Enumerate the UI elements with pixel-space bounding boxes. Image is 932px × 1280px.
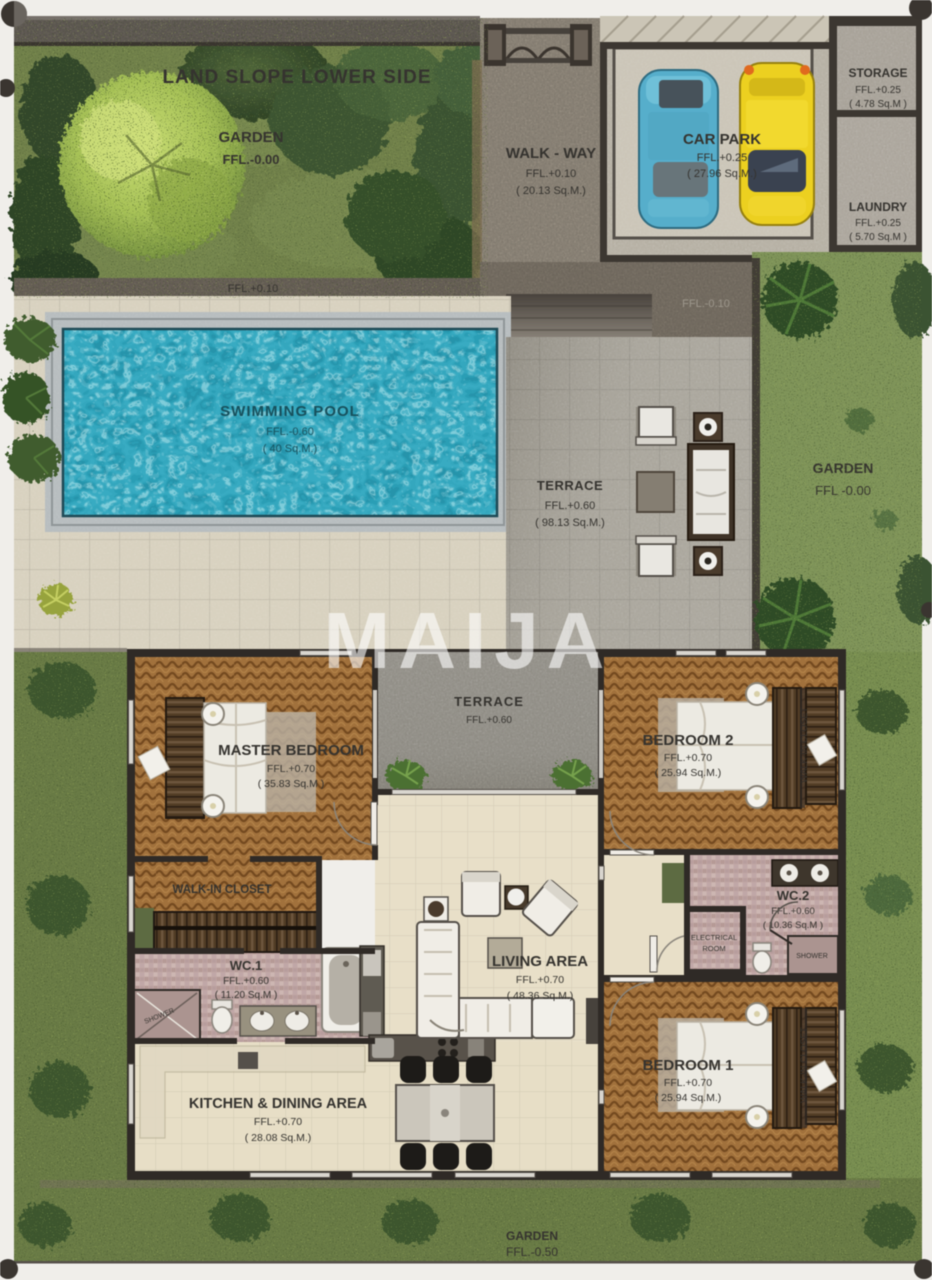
svg-text:FFL.+0.70: FFL.+0.70 [664,1077,712,1089]
svg-text:( 27.96 Sq.M.): ( 27.96 Sq.M.) [687,168,757,180]
svg-text:( 48.36 Sq.M.): ( 48.36 Sq.M.) [507,990,574,1002]
svg-text:CAR PARK: CAR PARK [683,131,761,148]
svg-text:SHOWER: SHOWER [796,953,828,960]
svg-text:( 35.83 Sq.M ): ( 35.83 Sq.M ) [258,778,325,790]
svg-text:GARDEN: GARDEN [218,129,283,146]
svg-text:FFL.+0.25: FFL.+0.25 [855,218,901,229]
svg-text:( 11.20 Sq.M ): ( 11.20 Sq.M ) [215,990,278,1001]
svg-text:FFL.+0.70: FFL.+0.70 [516,974,564,986]
svg-text:( 4.78 Sq.M ): ( 4.78 Sq.M ) [849,99,907,110]
svg-text:TERRACE: TERRACE [537,478,603,493]
svg-text:( 98.13 Sq.M.): ( 98.13 Sq.M.) [535,517,605,529]
svg-text:FFL.-0.60: FFL.-0.60 [266,426,314,438]
svg-text:FFL.+0.25: FFL.+0.25 [855,85,901,96]
svg-text:FFL.-0.00: FFL.-0.00 [222,152,279,167]
svg-text:KITCHEN & DINING AREA: KITCHEN & DINING AREA [189,1096,368,1112]
svg-text:( 40 Sq.M.): ( 40 Sq.M.) [263,443,317,455]
svg-text:FFL.+0.60: FFL.+0.60 [466,715,512,726]
svg-text:FFL.+0.70: FFL.+0.70 [267,763,315,775]
svg-text:BEDROOM 2: BEDROOM 2 [643,732,734,749]
svg-text:WC.1: WC.1 [230,958,263,973]
svg-text:LIVING AREA: LIVING AREA [492,953,588,970]
svg-text:( 20.13 Sq.M.): ( 20.13 Sq.M.) [516,185,586,197]
svg-text:WC.2: WC.2 [777,888,810,903]
svg-text:BEDROOM 1: BEDROOM 1 [643,1057,734,1074]
svg-text:FFL.-0.50: FFL.-0.50 [506,1245,558,1259]
svg-text:FFL.+0.70: FFL.+0.70 [254,1116,302,1128]
svg-text:MAIJA: MAIJA [324,596,613,685]
svg-text:MASTER BEDROOM: MASTER BEDROOM [218,742,364,759]
svg-text:FFL.+0.25: FFL.+0.25 [697,152,747,164]
svg-text:STORAGE: STORAGE [848,66,907,80]
svg-text:( 5.70 Sq.M ): ( 5.70 Sq.M ) [849,232,907,243]
svg-text:ELECTRICAL: ELECTRICAL [691,933,737,942]
svg-text:FFL.+0.70: FFL.+0.70 [664,752,712,764]
svg-text:ROOM: ROOM [702,944,725,953]
svg-text:LAUNDRY: LAUNDRY [849,200,907,214]
svg-text:FFL.-0.10: FFL.-0.10 [682,298,730,310]
svg-text:GARDEN: GARDEN [506,1229,558,1243]
svg-text:( 25.94 Sq.M.): ( 25.94 Sq.M.) [655,1092,722,1104]
svg-text:( 25.94 Sq.M.): ( 25.94 Sq.M.) [655,767,722,779]
svg-text:FFL.+0.10: FFL.+0.10 [526,168,576,180]
svg-text:WALK-IN CLOSET: WALK-IN CLOSET [172,884,271,896]
svg-text:WALK - WAY: WALK - WAY [506,145,596,162]
svg-text:LAND SLOPE LOWER SIDE: LAND SLOPE LOWER SIDE [162,67,431,88]
svg-text:SWIMMING POOL: SWIMMING POOL [220,403,360,420]
svg-text:FFL.+0.60: FFL.+0.60 [223,976,269,987]
svg-text:FFL.+0.60: FFL.+0.60 [545,500,595,512]
svg-text:TERRACE: TERRACE [454,694,524,709]
svg-text:( 28.08 Sq.M.): ( 28.08 Sq.M.) [245,1132,312,1144]
svg-text:FFL.+0.10: FFL.+0.10 [228,283,278,295]
